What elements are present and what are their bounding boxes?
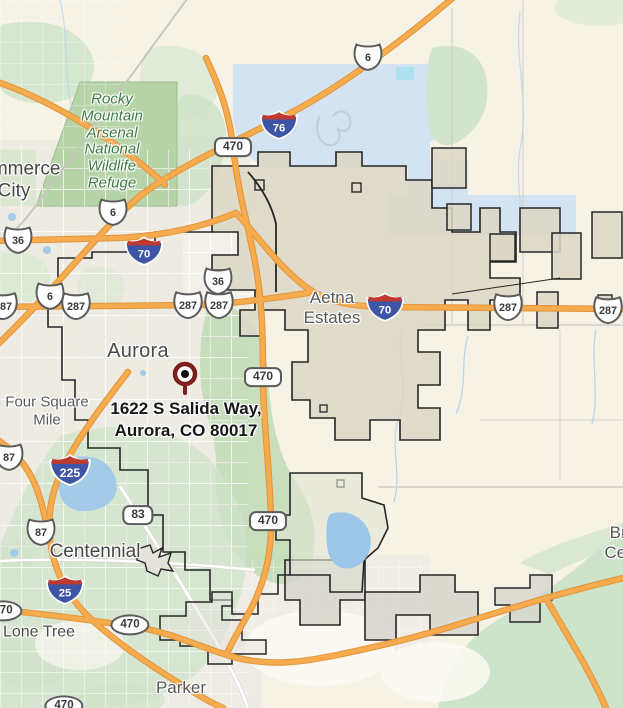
route-shield-us-87-19: 87 <box>25 518 57 547</box>
svg-text:76: 76 <box>273 122 285 134</box>
svg-text:6: 6 <box>365 52 371 64</box>
route-shield-interstate-70-6: 70 <box>125 235 163 267</box>
svg-text:87: 87 <box>3 452 15 464</box>
svg-text:287: 287 <box>499 302 517 314</box>
route-shield-us-287-12: 287 <box>489 293 527 322</box>
svg-text:287: 287 <box>67 301 85 313</box>
location-marker[interactable] <box>170 361 200 401</box>
address-line1: 1622 S Salida Way, <box>110 398 261 420</box>
route-shield-us-6-2: 6 <box>97 198 129 227</box>
us-shield-icon: 287 <box>0 292 22 321</box>
svg-text:25: 25 <box>59 587 71 599</box>
us-shield-icon: 287 <box>489 293 527 322</box>
us-shield-icon: 287 <box>57 292 95 321</box>
route-shields-layer: 6766636367070287287287287287287470470470… <box>0 0 623 708</box>
route-shield-interstate-76-1: 76 <box>260 109 298 141</box>
svg-text:287: 287 <box>0 301 12 313</box>
interstate-shield-icon: 225 <box>47 454 93 486</box>
marker-pin-icon <box>170 361 200 401</box>
interstate-shield-icon: 70 <box>366 291 404 323</box>
route-shield-pill-470-16: 470 <box>249 511 287 531</box>
interstate-shield-icon: 25 <box>46 574 84 606</box>
us-shield-icon: 287 <box>200 291 238 320</box>
us-shield-icon: 87 <box>0 443 25 472</box>
map-canvas[interactable]: CommerceCityRockyMountainArsenalNational… <box>0 0 623 708</box>
svg-text:6: 6 <box>47 291 53 303</box>
route-shield-pill-470-14: 470 <box>214 137 252 157</box>
us-shield-icon: 87 <box>25 518 57 547</box>
svg-text:287: 287 <box>599 305 617 317</box>
us-shield-icon: 6 <box>97 198 129 227</box>
route-shield-us-287-9: 287 <box>57 292 95 321</box>
interstate-shield-icon: 70 <box>125 235 163 267</box>
svg-text:36: 36 <box>212 276 224 288</box>
svg-text:287: 287 <box>179 300 197 312</box>
us-shield-icon: 6 <box>352 43 384 72</box>
address-label: 1622 S Salida Way, Aurora, CO 80017 <box>110 398 261 442</box>
route-shield-us-36-4: 36 <box>2 226 34 255</box>
svg-text:70: 70 <box>379 304 391 316</box>
svg-text:70: 70 <box>138 248 150 260</box>
us-shield-icon: 287 <box>589 296 623 325</box>
route-shield-us-87-18: 87 <box>0 443 25 472</box>
us-shield-icon: 36 <box>2 226 34 255</box>
route-shield-pill-470-15: 470 <box>244 367 282 387</box>
svg-text:87: 87 <box>35 527 47 539</box>
route-shield-oval-470-23: 470 <box>110 614 149 635</box>
svg-text:6: 6 <box>110 207 116 219</box>
route-shield-interstate-225-20: 225 <box>47 454 93 486</box>
route-shield-us-287-11: 287 <box>200 291 238 320</box>
route-shield-interstate-25-21: 25 <box>46 574 84 606</box>
address-line2: Aurora, CO 80017 <box>110 420 261 442</box>
svg-text:225: 225 <box>60 466 81 480</box>
svg-text:36: 36 <box>12 235 24 247</box>
route-shield-pill-83-17: 83 <box>122 505 153 525</box>
route-shield-us-287-8: 287 <box>0 292 22 321</box>
route-shield-oval-470-24: 470 <box>44 695 83 708</box>
route-shield-us-287-13: 287 <box>589 296 623 325</box>
route-shield-us-6-0: 6 <box>352 43 384 72</box>
interstate-shield-icon: 76 <box>260 109 298 141</box>
route-shield-oval-470-22: 470 <box>0 600 23 621</box>
route-shield-interstate-70-7: 70 <box>366 291 404 323</box>
svg-text:287: 287 <box>210 300 228 312</box>
